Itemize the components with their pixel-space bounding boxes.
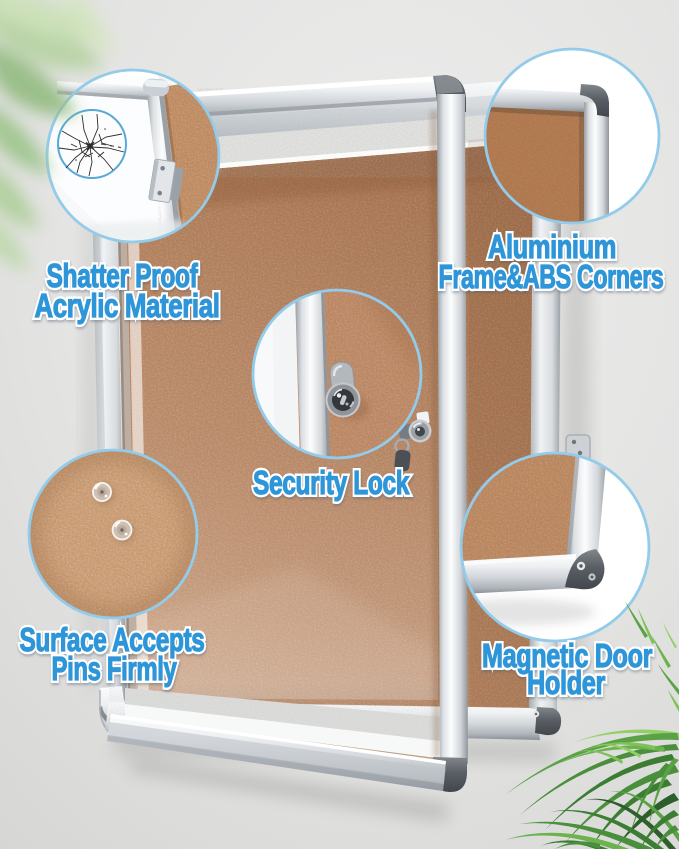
- svg-text:Pins Firmly: Pins Firmly: [52, 650, 178, 687]
- svg-text:Frame&ABS Corners: Frame&ABS Corners: [439, 258, 664, 295]
- svg-text:Holder: Holder: [527, 664, 606, 701]
- svg-text:Acrylic Material: Acrylic Material: [35, 287, 220, 324]
- svg-text:Security Lock: Security Lock: [253, 464, 410, 501]
